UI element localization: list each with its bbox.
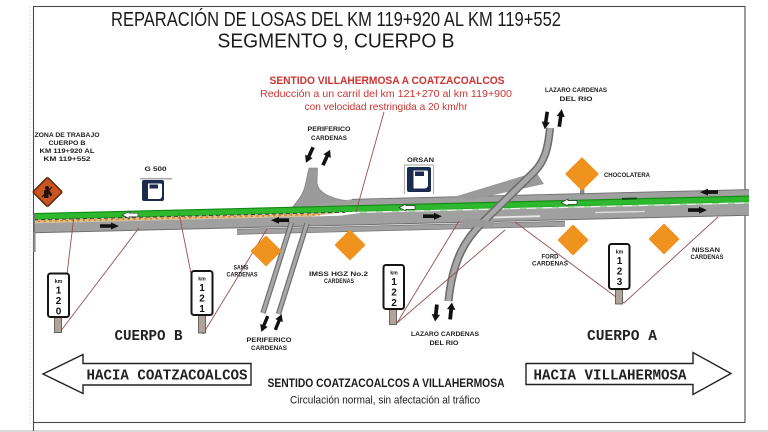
svg-text:CARDENAS: CARDENAS xyxy=(691,254,724,261)
svg-text:HACIA COATZACOALCOS: HACIA COATZACOALCOS xyxy=(87,368,248,385)
svg-text:LAZARO CARDENAS: LAZARO CARDENAS xyxy=(411,331,479,338)
svg-text:Reducción a un carril del km: Reducción a un carril del km 121+270 al … xyxy=(260,88,512,100)
svg-text:km: km xyxy=(198,277,206,283)
svg-text:CHOCOLATERA: CHOCOLATERA xyxy=(604,172,650,179)
svg-text:km: km xyxy=(616,250,624,256)
svg-text:SENTIDO VILLAHERMOSA A COATZAC: SENTIDO VILLAHERMOSA A COATZACOALCOS xyxy=(270,75,505,87)
svg-text:2: 2 xyxy=(56,296,62,307)
svg-text:PERIFERICO: PERIFERICO xyxy=(247,337,292,344)
svg-text:CARDENAS: CARDENAS xyxy=(311,135,347,142)
svg-text:Circulación normal, sin afecta: Circulación normal, sin afectación al tr… xyxy=(290,395,480,407)
svg-text:1: 1 xyxy=(391,277,397,288)
svg-text:1: 1 xyxy=(56,286,62,297)
svg-text:FORD: FORD xyxy=(542,254,559,261)
svg-text:DEL RIO: DEL RIO xyxy=(560,96,593,103)
svg-text:km: km xyxy=(55,279,63,285)
svg-text:CUERPO B: CUERPO B xyxy=(49,140,86,147)
svg-text:NISSAN: NISSAN xyxy=(692,247,720,254)
svg-text:SEGMENTO 9, CUERPO B: SEGMENTO 9, CUERPO B xyxy=(218,31,455,53)
svg-text:2: 2 xyxy=(617,267,623,278)
svg-text:SAMS: SAMS xyxy=(234,265,249,272)
svg-text:CARDENAS: CARDENAS xyxy=(227,272,258,279)
svg-text:KM 119+552: KM 119+552 xyxy=(44,156,91,163)
svg-text:2: 2 xyxy=(199,294,205,305)
svg-text:ORSAN: ORSAN xyxy=(407,157,434,164)
svg-text:1: 1 xyxy=(617,256,623,267)
svg-text:LAZARO CARDENAS: LAZARO CARDENAS xyxy=(545,87,607,94)
svg-text:IMSS HGZ No.2: IMSS HGZ No.2 xyxy=(309,271,368,278)
svg-text:ZONA DE TRABAJO: ZONA DE TRABAJO xyxy=(35,132,100,139)
svg-text:CUERPO A: CUERPO A xyxy=(587,328,657,345)
svg-text:CARDENAS: CARDENAS xyxy=(251,345,287,352)
svg-text:con velocidad restringida a 20: con velocidad restringida a 20 km/hr xyxy=(305,101,468,113)
svg-text:CUERPO B: CUERPO B xyxy=(115,328,183,345)
svg-text:1: 1 xyxy=(199,283,205,294)
svg-text:km: km xyxy=(390,271,398,277)
svg-text:PERIFERICO: PERIFERICO xyxy=(308,126,351,133)
svg-text:0: 0 xyxy=(56,307,62,318)
svg-text:KM 119+920 AL: KM 119+920 AL xyxy=(40,148,95,155)
svg-text:CARDENAS: CARDENAS xyxy=(532,261,568,268)
svg-text:1: 1 xyxy=(199,304,205,315)
svg-text:3: 3 xyxy=(617,277,623,288)
svg-text:G 500: G 500 xyxy=(145,166,167,173)
svg-text:CARDENAS: CARDENAS xyxy=(324,278,354,285)
svg-text:2: 2 xyxy=(391,298,397,309)
svg-text:DEL RIO: DEL RIO xyxy=(430,340,459,347)
svg-text:SENTIDO COATZACOALCOS A VILLAH: SENTIDO COATZACOALCOS A VILLAHERMOSA xyxy=(268,376,505,390)
svg-text:REPARACIÓN DE LOSAS DEL KM 119: REPARACIÓN DE LOSAS DEL KM 119+920 AL KM… xyxy=(111,8,561,31)
svg-text:2: 2 xyxy=(391,288,397,299)
svg-text:HACIA VILLAHERMOSA: HACIA VILLAHERMOSA xyxy=(534,368,687,385)
